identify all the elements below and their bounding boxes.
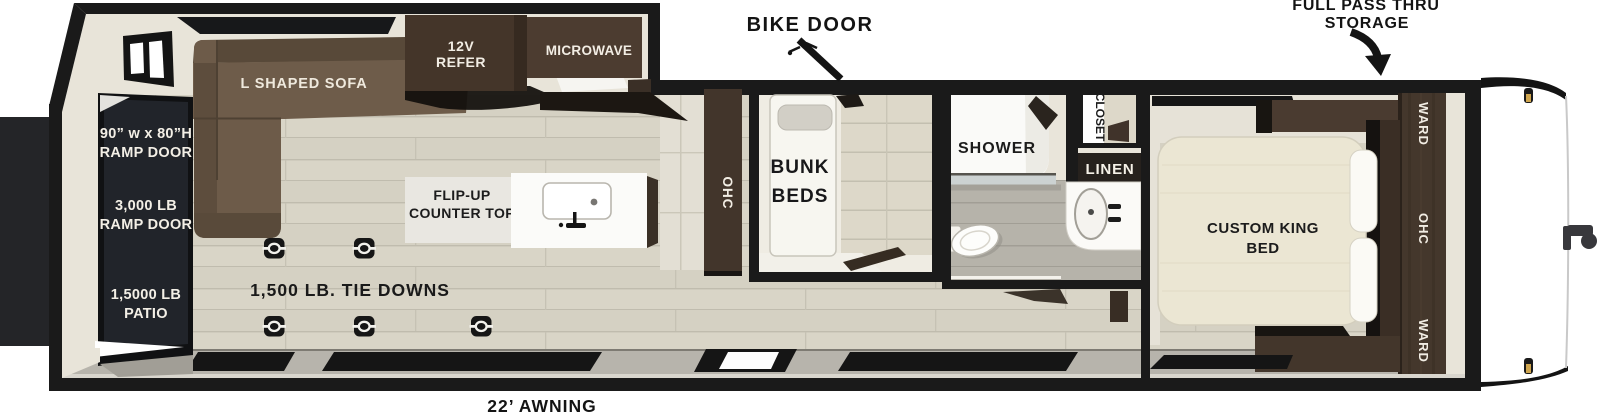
svg-text:OHC: OHC	[720, 177, 735, 210]
svg-text:RAMP DOOR: RAMP DOOR	[100, 145, 193, 161]
svg-text:1,5000 LB: 1,5000 LB	[111, 287, 181, 303]
svg-text:WARD: WARD	[1416, 102, 1431, 146]
svg-text:CUSTOM KING: CUSTOM KING	[1207, 220, 1319, 237]
svg-text:REFER: REFER	[436, 54, 486, 70]
svg-text:1,500 LB. TIE DOWNS: 1,500 LB. TIE DOWNS	[250, 280, 450, 300]
svg-text:PATIO: PATIO	[124, 306, 168, 322]
svg-text:RAMP DOOR: RAMP DOOR	[100, 217, 193, 233]
svg-text:90” w x 80”H: 90” w x 80”H	[100, 126, 192, 142]
svg-text:WARD: WARD	[1416, 319, 1431, 363]
svg-text:22’ AWNING: 22’ AWNING	[487, 396, 597, 415]
svg-text:STORAGE: STORAGE	[1325, 15, 1409, 32]
svg-text:BED: BED	[1246, 240, 1279, 257]
svg-text:BIKE DOOR: BIKE DOOR	[747, 14, 874, 36]
svg-text:L SHAPED SOFA: L SHAPED SOFA	[241, 76, 368, 92]
svg-text:FULL PASS THRU: FULL PASS THRU	[1292, 0, 1440, 14]
svg-text:BUNK: BUNK	[771, 157, 830, 178]
svg-text:3,000 LB: 3,000 LB	[115, 198, 177, 214]
svg-text:COUNTER TOP: COUNTER TOP	[409, 205, 515, 221]
svg-text:12V: 12V	[448, 38, 475, 54]
svg-text:LINEN: LINEN	[1086, 161, 1135, 178]
svg-text:MICROWAVE: MICROWAVE	[546, 43, 632, 58]
svg-text:FLIP-UP: FLIP-UP	[433, 187, 490, 203]
svg-text:BEDS: BEDS	[772, 186, 829, 207]
svg-text:CLOSET: CLOSET	[1093, 93, 1107, 142]
svg-text:OHC: OHC	[1416, 213, 1431, 245]
svg-text:SHOWER: SHOWER	[958, 140, 1036, 157]
